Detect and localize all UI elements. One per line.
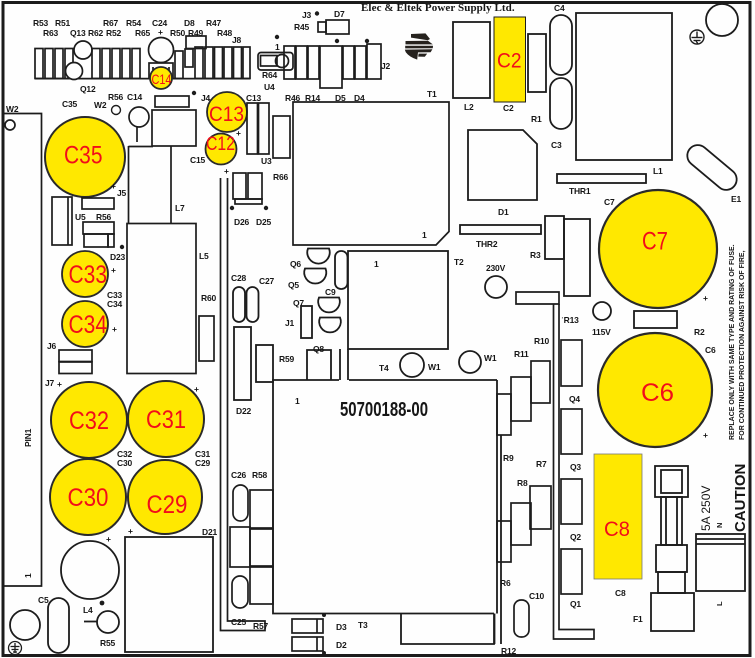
svg-text:PIN1: PIN1 [23,428,33,447]
svg-text:J2: J2 [381,61,391,71]
svg-text:R47: R47 [206,18,221,28]
svg-text:R59: R59 [279,354,294,364]
svg-text:C14: C14 [127,92,142,102]
svg-text:C28: C28 [231,273,246,283]
svg-text:U3: U3 [261,156,272,166]
svg-text:F1: F1 [633,614,643,624]
svg-text:THR1: THR1 [569,186,591,196]
svg-text:1: 1 [422,230,427,240]
svg-text:D5: D5 [335,93,346,103]
svg-text:C29: C29 [195,458,210,468]
svg-text:D3: D3 [336,622,347,632]
svg-text:T3: T3 [358,620,368,630]
svg-text:C35: C35 [62,99,77,109]
svg-text:R8: R8 [517,478,528,488]
svg-text:W2: W2 [94,100,107,110]
svg-text:T4: T4 [379,363,389,373]
svg-text:Q1: Q1 [570,599,581,609]
svg-text:R60: R60 [201,293,216,303]
svg-text:W2: W2 [6,104,19,114]
svg-text:C33: C33 [69,261,108,289]
svg-text:Q13: Q13 [70,28,86,38]
svg-text:U4: U4 [264,82,275,92]
svg-text:N: N [715,523,724,528]
svg-text:D26: D26 [234,217,249,227]
svg-text:Elec & Eltek Power Supply Ltd.: Elec & Eltek Power Supply Ltd. [361,2,515,14]
svg-text:L2: L2 [464,102,474,112]
svg-text:U5: U5 [75,212,86,222]
svg-text:R45: R45 [294,22,309,32]
svg-text:C34: C34 [69,311,108,339]
svg-text:D2: D2 [336,640,347,650]
svg-text:R56: R56 [108,92,123,102]
svg-text:+: + [111,181,116,191]
svg-text:C2: C2 [503,103,514,113]
svg-text:Q12: Q12 [80,84,96,94]
svg-text:R50: R50 [170,28,185,38]
svg-text:R6: R6 [500,578,511,588]
svg-text:D25: D25 [256,217,271,227]
svg-text:C7: C7 [604,197,615,207]
svg-text:R65: R65 [135,28,150,38]
svg-text:+: + [194,384,199,394]
svg-text:C8: C8 [615,588,626,598]
svg-text:T1: T1 [427,89,437,99]
svg-text:D23: D23 [110,252,125,262]
svg-text:C32: C32 [69,407,109,435]
svg-text:J8: J8 [232,35,242,45]
svg-text:R3: R3 [530,250,541,260]
svg-text:Q6: Q6 [290,259,301,269]
svg-text:C10: C10 [529,591,544,601]
svg-text:+: + [57,379,62,389]
svg-text:C14: C14 [152,71,172,87]
svg-text:R53: R53 [33,18,48,28]
svg-text:R1: R1 [531,114,542,124]
svg-text:D21: D21 [202,527,217,537]
svg-text:C7: C7 [642,228,668,256]
svg-text:C25: C25 [231,617,246,627]
svg-text:R11: R11 [514,349,529,359]
svg-text:L1: L1 [653,166,663,176]
svg-text:D4: D4 [354,93,365,103]
svg-text:R54: R54 [126,18,141,28]
svg-text:50700188-00: 50700188-00 [340,399,428,421]
svg-text:R10: R10 [534,336,549,346]
svg-text:Q3: Q3 [570,462,581,472]
svg-text:R12: R12 [501,646,516,656]
svg-text:C35: C35 [64,142,103,170]
svg-text:C29: C29 [147,491,188,519]
svg-text:R14: R14 [305,93,320,103]
svg-text:C34: C34 [107,299,122,309]
svg-text:C3: C3 [551,140,562,150]
svg-text:W1: W1 [484,353,497,363]
svg-text:+: + [158,27,163,37]
svg-text:FOR CONTINUED PROTECTION AGAIN: FOR CONTINUED PROTECTION AGAINST RISK OF… [739,250,746,440]
svg-text:R62: R62 [88,28,103,38]
svg-text:C27: C27 [259,276,274,286]
svg-text:R56: R56 [96,212,111,222]
svg-text:L7: L7 [175,203,185,213]
svg-text:C15: C15 [190,155,205,165]
svg-text:R58: R58 [252,470,267,480]
svg-text:230V: 230V [486,263,506,273]
svg-text:D22: D22 [236,406,251,416]
svg-text:Q5: Q5 [288,280,299,290]
svg-text:E1: E1 [731,194,741,204]
svg-text:R64: R64 [262,70,277,80]
svg-text:1: 1 [374,259,379,269]
svg-text:C30: C30 [117,458,132,468]
svg-text:Q2: Q2 [570,532,581,542]
svg-text:C6: C6 [705,345,716,355]
svg-text:C9: C9 [325,287,336,297]
svg-text:+: + [703,293,708,303]
svg-text:D8: D8 [184,18,195,28]
svg-text:THR2: THR2 [476,239,498,249]
svg-text:C12: C12 [206,134,235,155]
svg-text:5A 250V: 5A 250V [699,486,713,531]
svg-text:T2: T2 [454,257,464,267]
svg-text:R9: R9 [503,453,514,463]
svg-text:R46: R46 [285,93,300,103]
svg-text:C5: C5 [38,595,49,605]
svg-text:L: L [715,601,724,606]
svg-text:+: + [112,324,117,334]
svg-text:J1: J1 [285,318,295,328]
svg-text:1: 1 [275,42,280,52]
svg-text:R52: R52 [106,28,121,38]
svg-text:R63: R63 [43,28,58,38]
svg-text:L5: L5 [199,251,209,261]
svg-text:R57: R57 [253,621,268,631]
svg-text:1: 1 [295,396,300,406]
svg-text:+: + [106,534,111,544]
svg-text:C6: C6 [641,379,674,407]
svg-text:C30: C30 [68,484,109,512]
svg-text:D1: D1 [498,207,509,217]
svg-text:REPLACE ONLY WITH SAME TYPE AN: REPLACE ONLY WITH SAME TYPE AND RATING O… [729,244,736,440]
svg-text:R49: R49 [188,28,203,38]
svg-text:C2: C2 [497,50,522,73]
svg-text:W1: W1 [428,362,441,372]
svg-text:R2: R2 [694,327,705,337]
svg-text:J7: J7 [45,378,55,388]
svg-text:R67: R67 [103,18,118,28]
svg-text:+: + [224,166,229,176]
svg-text:Q8: Q8 [313,344,324,354]
svg-text:ʾR13: ʾR13 [561,315,579,325]
svg-text:J3: J3 [302,10,312,20]
svg-text:C26: C26 [231,470,246,480]
svg-text:R48: R48 [217,28,232,38]
svg-text:Q7: Q7 [293,298,304,308]
svg-text:+: + [111,265,116,275]
svg-text:Q4: Q4 [569,394,580,404]
svg-text:C8: C8 [604,518,630,541]
svg-text:C31: C31 [146,406,186,434]
svg-text:1: 1 [23,573,33,578]
svg-text:L4: L4 [83,605,93,615]
svg-text:J6: J6 [47,341,57,351]
svg-text:R7: R7 [536,459,547,469]
svg-text:D7: D7 [334,9,345,19]
svg-text:J4: J4 [201,93,211,103]
svg-text:C4: C4 [554,3,565,13]
svg-text:C13: C13 [209,103,244,126]
svg-text:+: + [703,430,708,440]
svg-text:+: + [236,128,241,138]
svg-text:CAUTION: CAUTION [732,464,749,532]
svg-text:+: + [128,526,133,536]
svg-text:R66: R66 [273,172,288,182]
svg-text:C13: C13 [246,93,261,103]
svg-text:115V: 115V [592,327,611,337]
svg-text:R55: R55 [100,638,115,648]
svg-text:J5: J5 [117,188,127,198]
svg-text:R51: R51 [55,18,70,28]
